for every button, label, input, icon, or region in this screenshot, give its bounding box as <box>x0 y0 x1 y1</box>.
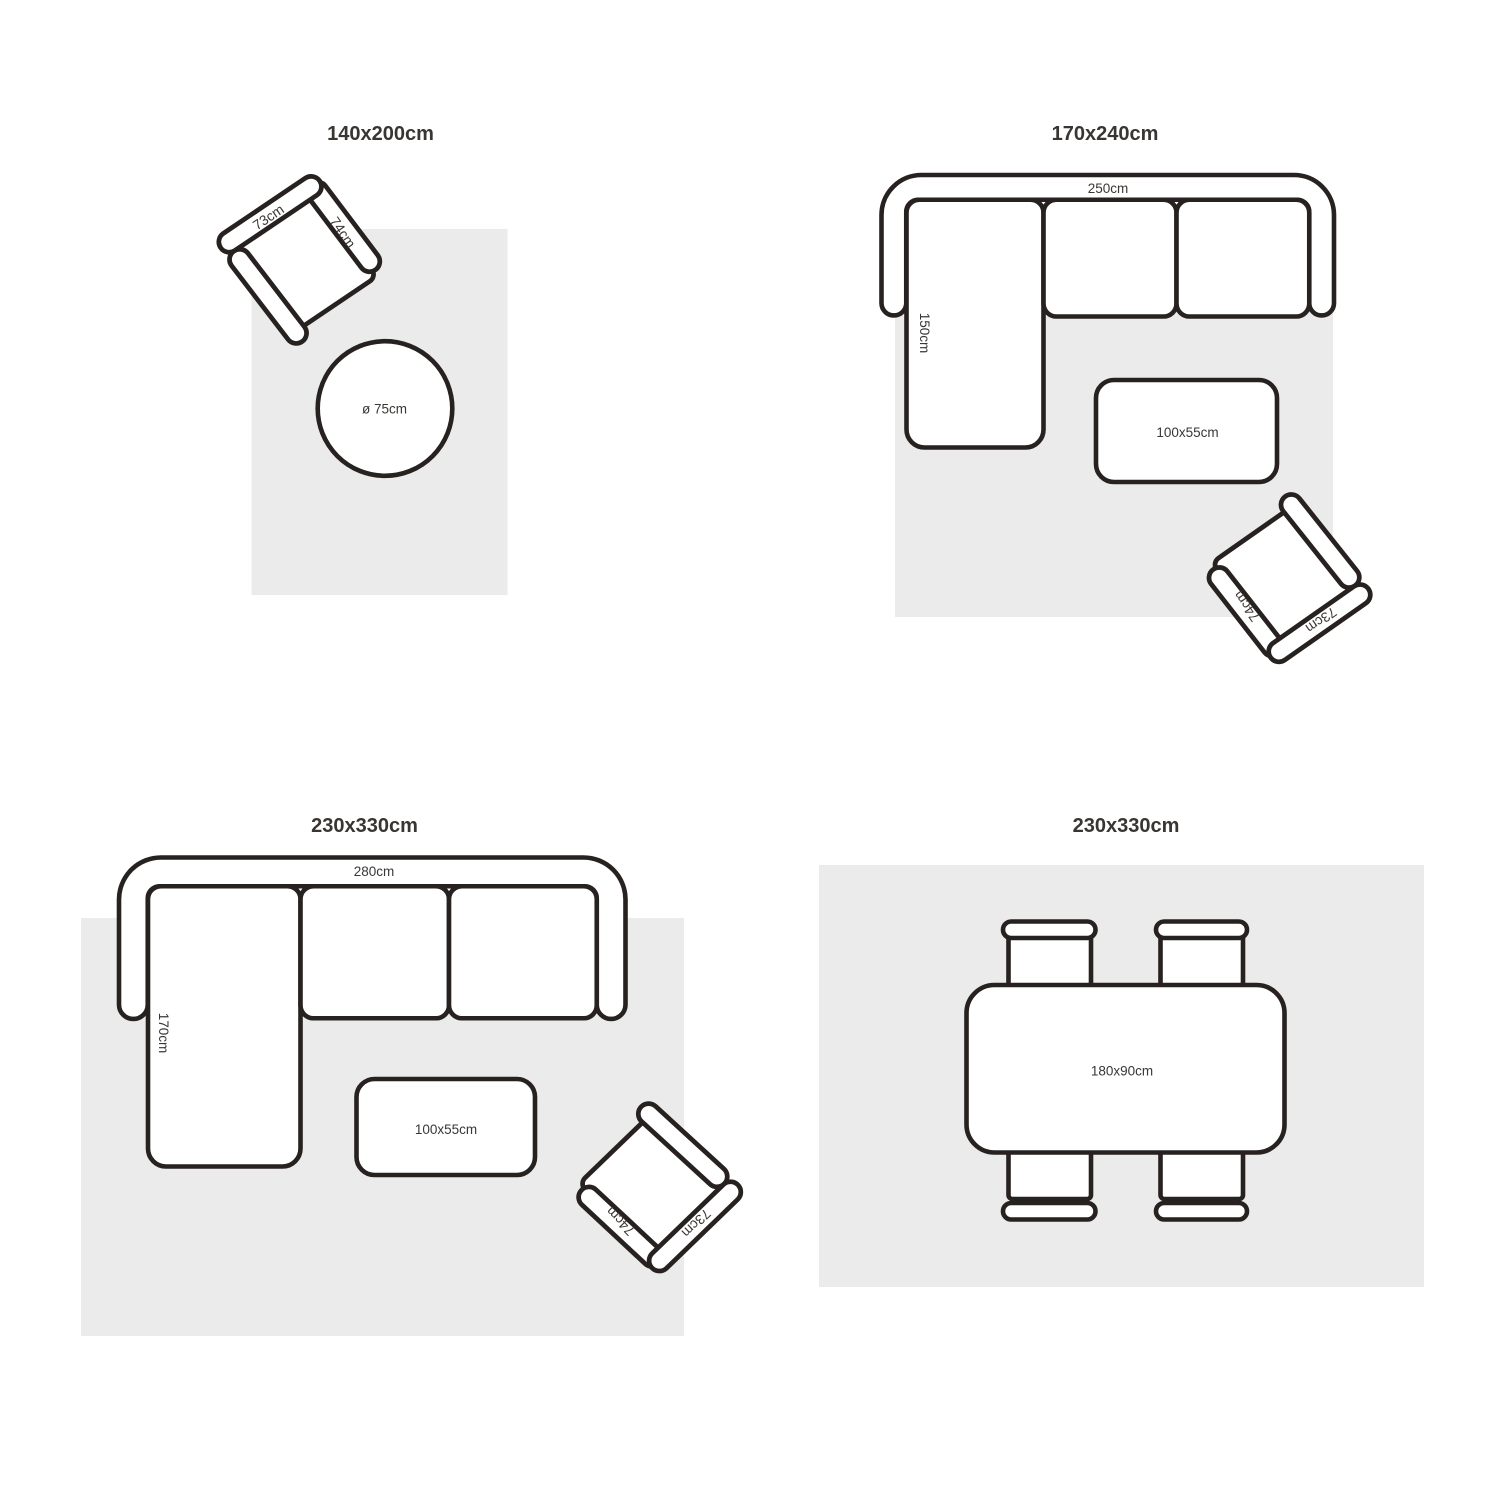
svg-text:ø 75cm: ø 75cm <box>362 402 407 417</box>
svg-text:180x90cm: 180x90cm <box>1091 1064 1153 1079</box>
svg-text:250cm: 250cm <box>1088 181 1129 196</box>
svg-text:280cm: 280cm <box>354 864 395 879</box>
svg-text:170cm: 170cm <box>156 1013 171 1054</box>
svg-text:140x200cm: 140x200cm <box>327 123 434 145</box>
svg-text:100x55cm: 100x55cm <box>415 1122 477 1137</box>
svg-text:100x55cm: 100x55cm <box>1156 425 1218 440</box>
svg-text:150cm: 150cm <box>917 313 932 354</box>
svg-text:170x240cm: 170x240cm <box>1052 123 1159 145</box>
svg-text:230x330cm: 230x330cm <box>311 815 418 837</box>
svg-text:230x330cm: 230x330cm <box>1073 815 1180 837</box>
